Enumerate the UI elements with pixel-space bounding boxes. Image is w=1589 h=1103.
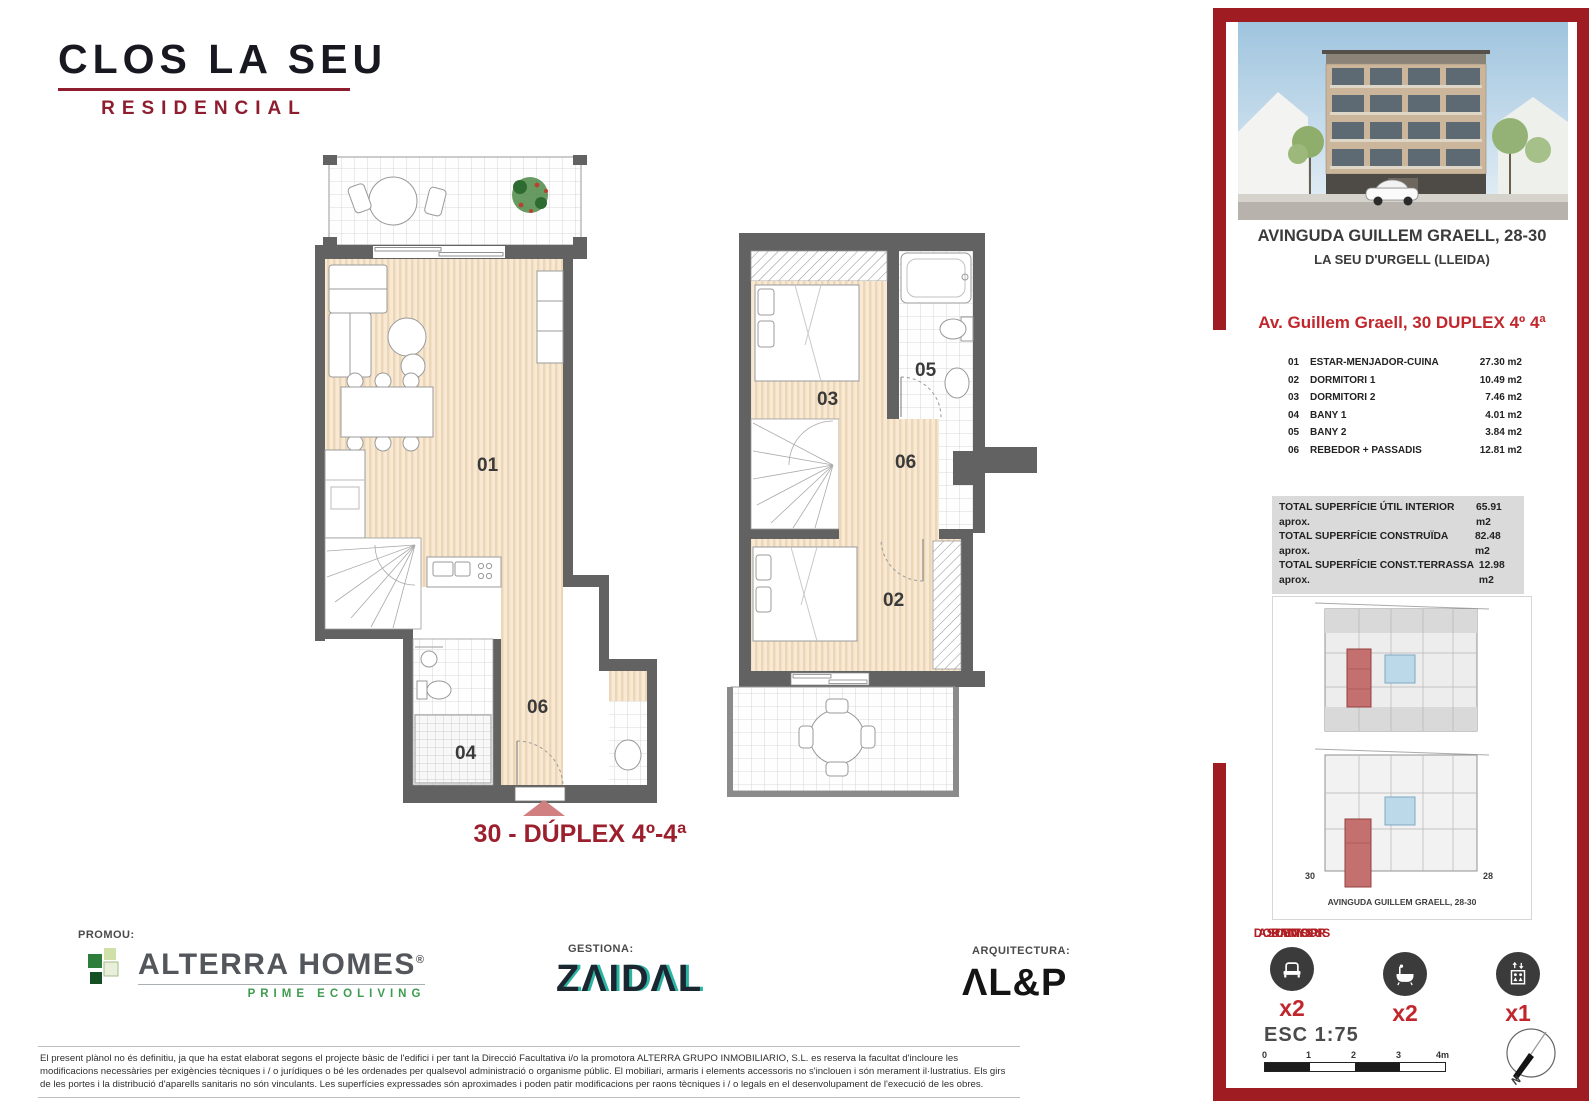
promoter-tagline: PRIME ECOLIVING bbox=[138, 988, 425, 1000]
highlighted-unit-upper bbox=[1347, 649, 1371, 707]
scale-bar: 0 1 2 3 4m bbox=[1264, 1050, 1448, 1074]
frame-left-lower bbox=[1213, 763, 1226, 1101]
frame-right bbox=[1577, 8, 1589, 1101]
wardrobe bbox=[933, 541, 961, 669]
entry-niche bbox=[609, 671, 647, 785]
terrace-lower bbox=[323, 155, 587, 259]
architect-label: ARQUITECTURA: bbox=[972, 945, 1070, 957]
manager-name: ZΛIDΛL bbox=[556, 958, 703, 1001]
total-row: TOTAL SUPERFÍCIE CONST.TERRASSA aprox. 1… bbox=[1279, 559, 1517, 588]
unit-title: Av. Guillem Graell, 30 DUPLEX 4º 4ª bbox=[1232, 313, 1572, 333]
totals-box: TOTAL SUPERFÍCIE ÚTIL INTERIOR aprox. 65… bbox=[1272, 496, 1524, 594]
floor-plan-lower: 01 06 04 bbox=[315, 155, 665, 835]
room-label-06: 06 bbox=[527, 697, 548, 718]
north-compass-icon: N bbox=[1500, 1024, 1562, 1088]
manager-logo: ZΛIDΛL ZΛIDΛL bbox=[556, 958, 726, 1004]
keyplan-diagram: 30 28 bbox=[1273, 597, 1531, 893]
room-schedule: 01 ESTAR-MENJADOR-CUINA 27.30 m2 02 DORM… bbox=[1288, 357, 1522, 463]
highlighted-unit-lower bbox=[1345, 819, 1371, 887]
architect-name: ΛL&P bbox=[962, 962, 1067, 1005]
patio-upper bbox=[1385, 655, 1415, 683]
floor-plan-sheet: CLOS LA SEU RESIDENCIAL bbox=[0, 0, 1589, 1103]
room-02 bbox=[751, 539, 961, 685]
alterra-icon bbox=[86, 948, 128, 996]
elevator-icon bbox=[1496, 952, 1540, 996]
keyplan-caption: AVINGUDA GUILLEM GRAELL, 28-30 bbox=[1273, 897, 1531, 907]
elevator-count: x1 bbox=[1466, 1000, 1570, 1027]
promoter-logo: ALTERRA HOMES® PRIME ECOLIVING bbox=[86, 948, 425, 1000]
scale-tick: 0 bbox=[1262, 1050, 1267, 1060]
hall-upper bbox=[751, 419, 973, 539]
brand-underline bbox=[58, 88, 350, 91]
terrace-table bbox=[369, 177, 417, 225]
coffee-table bbox=[388, 318, 426, 356]
room-label-02: 02 bbox=[883, 590, 904, 611]
plan-caption: 30 - DÚPLEX 4º-4ª bbox=[425, 820, 735, 849]
keyplan-num-right: 28 bbox=[1483, 871, 1493, 881]
brand-tagline: RESIDENCIAL bbox=[58, 98, 350, 120]
keyplan-lower: 30 28 bbox=[1305, 749, 1493, 887]
total-row: TOTAL SUPERFÍCIE ÚTIL INTERIOR aprox. 65… bbox=[1279, 501, 1517, 530]
scale-tick: 1 bbox=[1306, 1050, 1311, 1060]
scale-label: ESC 1:75 bbox=[1264, 1024, 1359, 1047]
feature-elevator: ASCENSOR x1 bbox=[1466, 926, 1570, 1027]
keyplan-upper bbox=[1315, 603, 1489, 731]
features-row: DORMITORIS x2 BANYS bbox=[1240, 926, 1570, 1027]
room-label-04: 04 bbox=[455, 743, 477, 764]
brand-name: CLOS LA SEU bbox=[58, 36, 350, 83]
room-label-06-upper: 06 bbox=[895, 452, 916, 473]
room-label-03: 03 bbox=[817, 389, 838, 410]
address-line2: LA SEU D'URGELL (LLEIDA) bbox=[1232, 252, 1572, 267]
floor-plan-upper: 03 05 06 02 bbox=[725, 225, 1045, 805]
compass-n-label: N bbox=[1510, 1074, 1524, 1088]
bathtub-icon bbox=[1383, 952, 1427, 996]
registered-mark: ® bbox=[416, 954, 426, 966]
room-schedule-row: 06 REBEDOR + PASSADIS 12.81 m2 bbox=[1288, 445, 1522, 463]
promoter-name: ALTERRA HOMES® bbox=[138, 948, 425, 982]
room-schedule-row: 01 ESTAR-MENJADOR-CUINA 27.30 m2 bbox=[1288, 357, 1522, 375]
bath-04 bbox=[413, 639, 493, 785]
bedrooms-count: x2 bbox=[1240, 995, 1344, 1022]
closet bbox=[751, 251, 887, 281]
alterra-rule bbox=[138, 984, 425, 985]
stairs-lower bbox=[325, 538, 421, 629]
feature-bathrooms: BANYS x2 bbox=[1353, 926, 1457, 1027]
bathrooms-count: x2 bbox=[1353, 1000, 1457, 1027]
feature-bedrooms: DORMITORIS x2 bbox=[1240, 926, 1344, 1027]
promoter-label: PROMOU: bbox=[78, 929, 135, 941]
bath-05 bbox=[899, 251, 973, 419]
bed-icon bbox=[1270, 947, 1314, 991]
room-schedule-row: 04 BANY 1 4.01 m2 bbox=[1288, 410, 1522, 428]
manager-label: GESTIONA: bbox=[568, 943, 634, 955]
room-label-01: 01 bbox=[477, 455, 499, 476]
keyplan-num-left: 30 bbox=[1305, 871, 1315, 881]
frame-bottom bbox=[1213, 1088, 1589, 1101]
scale-tick: 2 bbox=[1351, 1050, 1356, 1060]
cabinet bbox=[537, 271, 563, 363]
brand-logo: CLOS LA SEU RESIDENCIAL bbox=[58, 36, 350, 120]
total-row: TOTAL SUPERFÍCIE CONSTRUÏDA aprox. 82.48… bbox=[1279, 530, 1517, 559]
room-label-05: 05 bbox=[915, 360, 937, 381]
scale-tick: 4m bbox=[1436, 1050, 1449, 1060]
room-schedule-row: 05 BANY 2 3.84 m2 bbox=[1288, 427, 1522, 445]
keyplan-box: 30 28 AVINGUDA GUILLEM GRAELL, 28-30 bbox=[1272, 596, 1532, 920]
terrace-table-upper bbox=[810, 710, 864, 764]
plant bbox=[512, 177, 548, 213]
patio-lower bbox=[1385, 797, 1415, 825]
address-line1: AVINGUDA GUILLEM GRAELL, 28-30 bbox=[1232, 227, 1572, 246]
frame-left-upper bbox=[1213, 8, 1226, 330]
room-schedule-row: 03 DORMITORI 2 7.46 m2 bbox=[1288, 392, 1522, 410]
legal-disclaimer: El present plànol no és definitiu, ja qu… bbox=[38, 1046, 1020, 1098]
building-photo bbox=[1238, 22, 1568, 220]
terrace-upper bbox=[727, 687, 959, 797]
room-schedule-row: 02 DORMITORI 1 10.49 m2 bbox=[1288, 375, 1522, 393]
frame-top bbox=[1213, 8, 1589, 22]
scale-tick: 3 bbox=[1396, 1050, 1401, 1060]
